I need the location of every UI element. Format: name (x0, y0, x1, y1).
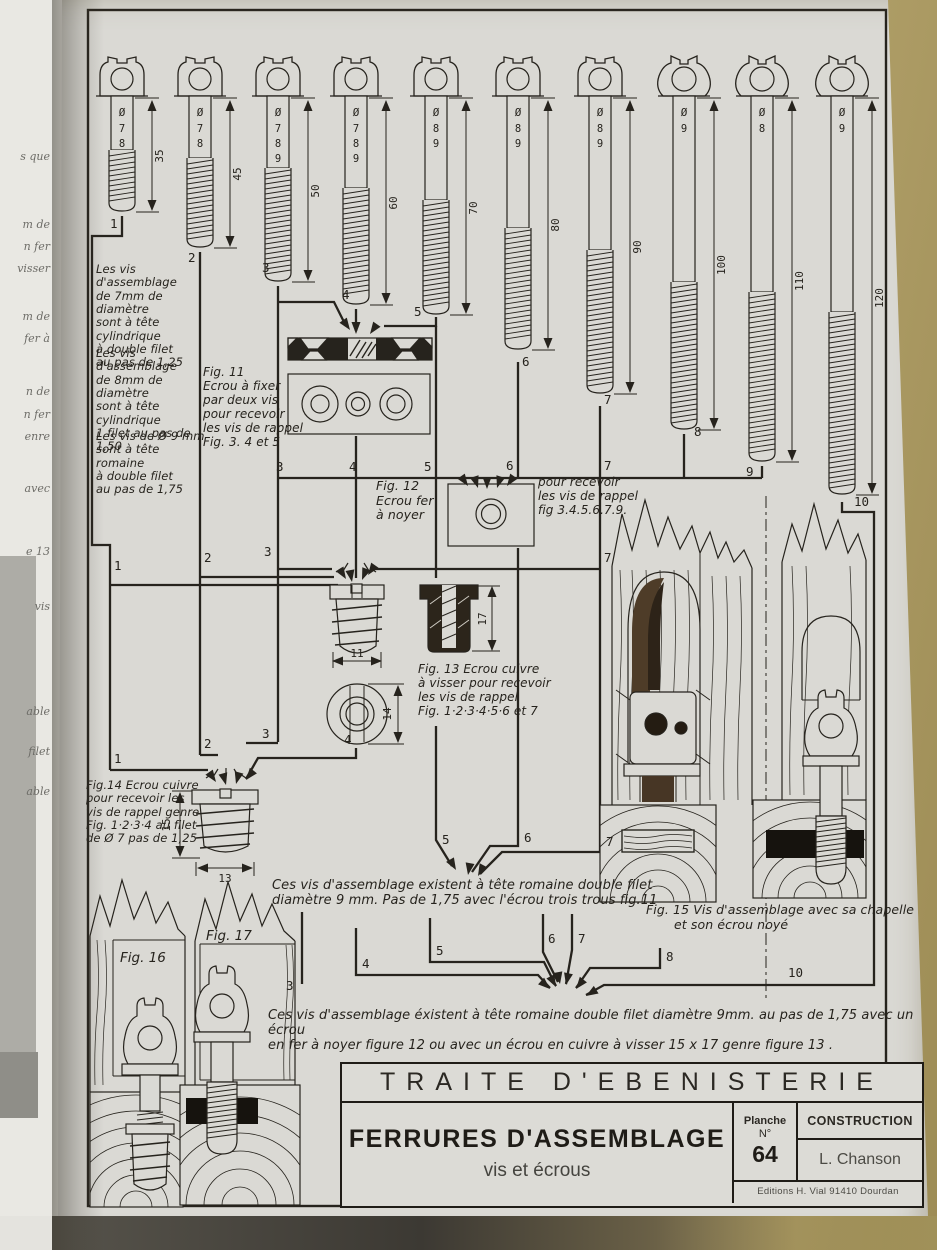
screw-note-2-line: Les vis d'assemblage (96, 347, 208, 374)
fig11-caption-line: Fig. 3. 4 et 5 (203, 436, 321, 450)
title-block: TRAITE D'EBENISTERIE FERRURES D'ASSEMBLA… (340, 1062, 924, 1208)
convergence-arrow (242, 768, 256, 783)
fig12-caption-line: Fig. 12 (376, 479, 464, 494)
margin-text-fragment: avec (25, 482, 50, 495)
screw-number: 5 (414, 304, 422, 319)
convergence-arrow (232, 771, 244, 785)
screw-number: 1 (110, 216, 118, 231)
plate-number-cell: Planche N° 64 (734, 1103, 796, 1180)
route-number: 3 (262, 726, 270, 741)
fig14-caption-line: Fig. 1·2·3·4 au filet (86, 819, 211, 832)
route-number: 3 (286, 978, 294, 993)
screw-number: 4 (342, 287, 350, 302)
diameter-value: 8 (275, 138, 281, 150)
diameter-symbol: Ø (119, 106, 126, 119)
margin-text-fragment: filet (28, 745, 50, 758)
fig13-caption-line: à visser pour recevoir (418, 677, 573, 691)
screw-note-2-line: de 8mm de diamètre (96, 374, 208, 401)
facing-page-photo (0, 556, 36, 1052)
diameter-value: 7 (119, 123, 125, 135)
screw-5: Ø89705 (410, 57, 480, 319)
mid-note-line: Ces vis d'assemblage existent à tête rom… (272, 878, 712, 893)
margin-text-fragment: n fer (24, 408, 50, 421)
route-number: 7 (578, 931, 586, 946)
margin-text-fragment: visser (17, 262, 50, 275)
screw-6: Ø89806 (492, 57, 562, 369)
route-number: 2 (204, 736, 212, 751)
convergence-arrow (345, 569, 356, 582)
diameter-symbol: Ø (759, 106, 766, 119)
length-value: 100 (715, 255, 728, 275)
screw-note-3: Les vis de Ø 9 mmsont à tête romaineà do… (96, 430, 208, 497)
margin-text-fragment: m de (23, 310, 50, 323)
author-cell: L. Chanson (796, 1140, 922, 1180)
convergence-arrow (572, 977, 586, 992)
route-number: 3 (264, 544, 272, 559)
diameter-value: 9 (681, 123, 687, 135)
fig14-caption: Fig.14 Ecrou cuivrepour recevoir lesvis … (86, 779, 211, 846)
screw-thread (423, 200, 449, 314)
fig14-caption-line: pour recevoir les (86, 792, 211, 805)
screw-10: Ø912010 (816, 56, 886, 509)
margin-text-fragment: s que (20, 150, 50, 163)
book-bottom-edge (0, 1216, 937, 1250)
route-number: 2 (204, 550, 212, 565)
margin-text-fragment: vis (35, 600, 50, 613)
diameter-symbol: Ø (197, 106, 204, 119)
route-number: 1 (114, 751, 122, 766)
screw-4: Ø789604 (330, 57, 400, 305)
route-number: 1 (114, 558, 122, 573)
fig17-label: Fig. 17 (206, 928, 252, 944)
diameter-value: 8 (197, 138, 203, 150)
mid-note-line: diamètre 9 mm. Pas de 1,75 avec l'écrou … (272, 893, 712, 908)
screw-thread (587, 250, 613, 393)
fig13-width: 11 (350, 647, 363, 660)
screw-number: 9 (746, 464, 754, 479)
diameter-value: 7 (353, 123, 359, 135)
fig12-caption-line: Ecrou fer (376, 494, 464, 509)
screw-number: 6 (522, 354, 530, 369)
convergence-arrow (562, 972, 573, 986)
category-cell: CONSTRUCTION (796, 1103, 922, 1140)
route-number: 5 (424, 459, 432, 474)
diameter-value: 8 (515, 123, 521, 135)
diameter-symbol: Ø (515, 106, 522, 119)
fig12-caption: Fig. 12Ecrou ferà noyer (376, 479, 464, 523)
margin-text-fragment: e 13 (26, 545, 50, 558)
route-number: 5 (442, 832, 450, 847)
route-number: 7 (604, 458, 612, 473)
fig15-caption-line: et son écrou noyé (646, 918, 931, 933)
screw-9: Ø81109 (736, 56, 806, 479)
length-value: 50 (309, 184, 322, 197)
diameter-value: 9 (433, 138, 439, 150)
fig12-note-line: pour recevoir (538, 476, 653, 490)
numero-label: N° (759, 1128, 771, 1140)
screw-note-2-line: sont à tête cylindrique (96, 400, 208, 427)
convergence-arrow (352, 322, 361, 334)
route-number: 5 (436, 943, 444, 958)
planche-label: Planche (744, 1115, 786, 1127)
length-value: 80 (549, 218, 562, 231)
route-number: 7 (604, 550, 612, 565)
facing-page-photo-dark (0, 1052, 38, 1118)
screw-note-3-line: Les vis de Ø 9 mm (96, 430, 208, 443)
length-value: 70 (467, 201, 480, 214)
screw-3: Ø789503 (252, 57, 322, 282)
screw-note-3-line: sont à tête romaine (96, 443, 208, 470)
diameter-symbol: Ø (597, 106, 604, 119)
diameter-symbol: Ø (275, 106, 282, 119)
fig16-label: Fig. 16 (120, 950, 166, 966)
diameter-value: 8 (759, 123, 765, 135)
convergence-arrow (366, 322, 380, 337)
margin-text-fragment: n de (26, 385, 50, 398)
margin-text-fragment: able (26, 705, 50, 718)
screw-shank (589, 96, 611, 250)
diameter-value: 8 (597, 123, 603, 135)
screw-7: Ø89907 (574, 57, 644, 407)
diameter-value: 9 (839, 123, 845, 135)
planche-number: 64 (752, 1141, 778, 1168)
length-value: 110 (793, 271, 806, 291)
screw-number: 3 (262, 260, 270, 275)
fig14-caption-line: vis de rappel genre (86, 806, 211, 819)
fig12-note-line: les vis de rappel (538, 490, 653, 504)
fig13-caption-line: Fig. 13 Ecrou cuivre (418, 663, 573, 677)
screw-number: 7 (604, 392, 612, 407)
route-number: 3 (276, 459, 284, 474)
length-value: 60 (387, 196, 400, 209)
fig13-height: 17 (476, 612, 489, 625)
plate-title: FERRURES D'ASSEMBLAGE (349, 1125, 725, 1154)
fig11-caption-line: Ecrou à fixer (203, 380, 321, 394)
screw-note-1-line: sont à tête cylindrique (96, 316, 208, 343)
diameter-symbol: Ø (839, 106, 846, 119)
screw-head (658, 56, 711, 96)
fig14-caption-line: de Ø 7 pas de 1,25 (86, 832, 211, 845)
publisher-cell: Editions H. Vial 91410 Dourdan (734, 1180, 922, 1200)
margin-text-fragment: enre (25, 430, 50, 443)
route-number: 6 (548, 931, 556, 946)
diameter-value: 8 (119, 138, 125, 150)
fig13-caption-line: Fig. 1·2·3·4·5·6 et 7 (418, 705, 573, 719)
fig14-width: 13 (218, 872, 231, 885)
diameter-value: 8 (353, 138, 359, 150)
facing-page-edge: s quem den fervisserm defer àn den feren… (0, 0, 62, 1250)
fig13-caption: Fig. 13 Ecrou cuivreà visser pour recevo… (418, 663, 573, 719)
diameter-value: 9 (597, 138, 603, 150)
plate-subtitle: vis et écrous (484, 1160, 591, 1182)
diameter-value: 7 (197, 123, 203, 135)
fig11-caption-line: par deux vis (203, 394, 321, 408)
route-number: 4 (344, 732, 352, 747)
mid-note: Ces vis d'assemblage existent à tête rom… (272, 878, 712, 908)
margin-text-fragment: n fer (24, 240, 50, 253)
route-number: 7 (606, 834, 614, 849)
screw-head (736, 56, 789, 96)
screw-note-3-line: à double filet (96, 470, 208, 483)
screw-8: Ø91008 (658, 56, 728, 439)
screw-number: 8 (694, 424, 702, 439)
diameter-symbol: Ø (353, 106, 360, 119)
diameter-symbol: Ø (433, 106, 440, 119)
screw-head (816, 56, 869, 96)
bottom-note: Ces vis d'assemblage éxistent à tête rom… (268, 1008, 933, 1053)
convergence-arrow (584, 986, 599, 1000)
fig14-caption-line: Fig.14 Ecrou cuivre (86, 779, 211, 792)
length-value: 45 (231, 167, 244, 180)
route-number: 10 (788, 965, 803, 980)
bottom-note-line: en fer à noyer figure 12 ou avec un écro… (268, 1038, 933, 1053)
fig13-diameter: 14 (381, 707, 394, 721)
fig11-caption-line: Fig. 11 (203, 366, 321, 380)
bottom-note-line: Ces vis d'assemblage éxistent à tête rom… (268, 1008, 933, 1038)
diameter-value: 9 (515, 138, 521, 150)
fig12-caption-line: à noyer (376, 508, 464, 523)
fig13-caption-line: les vis de rappel (418, 691, 573, 705)
convergence-arrow (339, 318, 353, 333)
treatise-title: TRAITE D'EBENISTERIE (342, 1064, 922, 1103)
fig11-caption: Fig. 11Ecrou à fixerpar deux vispour rec… (203, 366, 321, 449)
fig12-note-line: fig 3.4.5.6.7.9. (538, 504, 653, 518)
book-photo: { "plate": { "screws": [ {"number":"1","… (0, 0, 937, 1250)
route-number: 6 (524, 830, 532, 845)
margin-text-fragment: fer à (24, 332, 50, 345)
route-number: 4 (362, 956, 370, 971)
diameter-symbol: Ø (681, 106, 688, 119)
diameter-value: 9 (275, 153, 281, 165)
margin-text-fragment: m de (23, 218, 50, 231)
length-value: 120 (873, 288, 886, 308)
screw-note-3-line: au pas de 1,75 (96, 483, 208, 496)
length-value: 90 (631, 240, 644, 253)
fig11-caption-line: les vis de rappel (203, 422, 321, 436)
screw-note-1-line: Les vis d'assemblage (96, 263, 208, 290)
diameter-value: 8 (433, 123, 439, 135)
diameter-value: 7 (275, 123, 281, 135)
route-number: 8 (666, 949, 674, 964)
screw-number: 10 (854, 494, 869, 509)
fig12-note: pour recevoirles vis de rappelfig 3.4.5.… (538, 476, 653, 518)
screw-2: Ø78452 (174, 57, 244, 265)
screw-note-1-line: de 7mm de diamètre (96, 290, 208, 317)
screw-1: Ø78351 (96, 57, 166, 231)
fig11-caption-line: pour recevoir (203, 408, 321, 422)
convergence-arrow (219, 772, 231, 786)
route-number: 6 (506, 458, 514, 473)
length-value: 35 (153, 149, 166, 162)
margin-text-fragment: able (26, 785, 50, 798)
route-number: 4 (349, 459, 357, 474)
diameter-value: 9 (353, 153, 359, 165)
